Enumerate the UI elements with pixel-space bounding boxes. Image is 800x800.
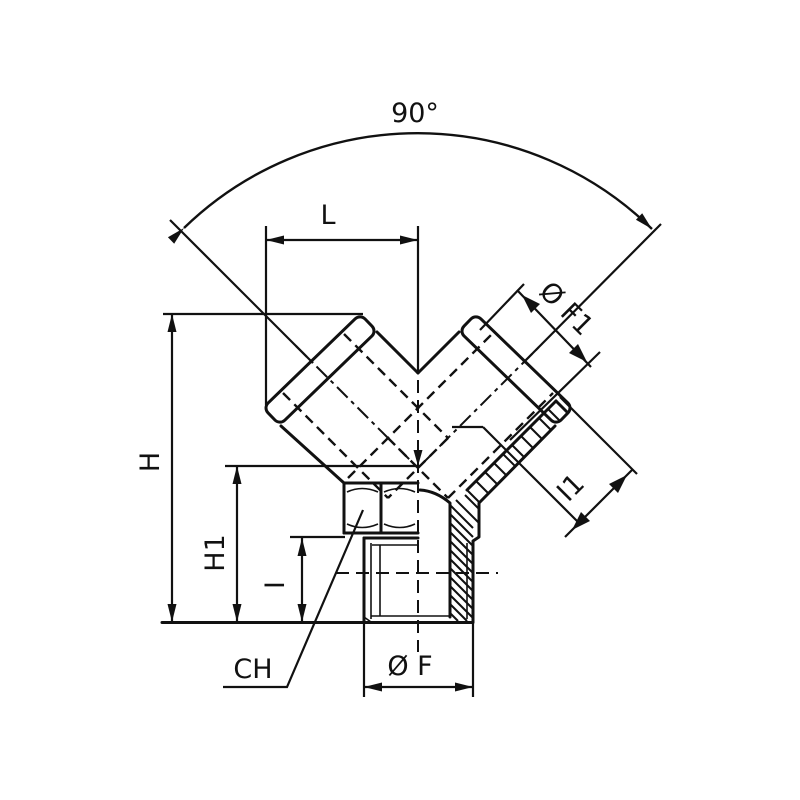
left-arm-lower-edge: [281, 426, 344, 483]
dimension-I: [290, 537, 345, 622]
label-OF: Ø F: [387, 651, 432, 682]
angle-arc: [184, 133, 652, 229]
label-I: I: [260, 581, 291, 589]
left-arm-upper-edge: [377, 332, 418, 373]
bottom-wall-section-hatch: [450, 505, 473, 621]
body-fillet-and-bore-wall: [420, 490, 450, 617]
right-arm-upper-edge: [418, 332, 459, 373]
angle-line-left: [170, 220, 313, 363]
label-angle: 90°: [391, 98, 439, 129]
label-H1: H1: [200, 534, 231, 571]
label-L: L: [320, 200, 335, 231]
right-arm-outer-wall: [473, 426, 555, 622]
dimension-L: [266, 226, 418, 405]
label-CH: CH: [233, 654, 272, 685]
label-OF1: Ø F1: [533, 276, 599, 342]
label-H: H: [135, 452, 166, 472]
technical-drawing-canvas: 90° L H H1 I I1 Ø F1 Ø F CH: [0, 0, 800, 800]
right-arm: [348, 314, 573, 622]
dimension-H: [163, 314, 363, 622]
y-fitting-drawing: 90° L H H1 I I1 Ø F1 Ø F CH: [0, 0, 800, 800]
hex-flats: [344, 483, 418, 533]
centerlines: [296, 226, 540, 652]
